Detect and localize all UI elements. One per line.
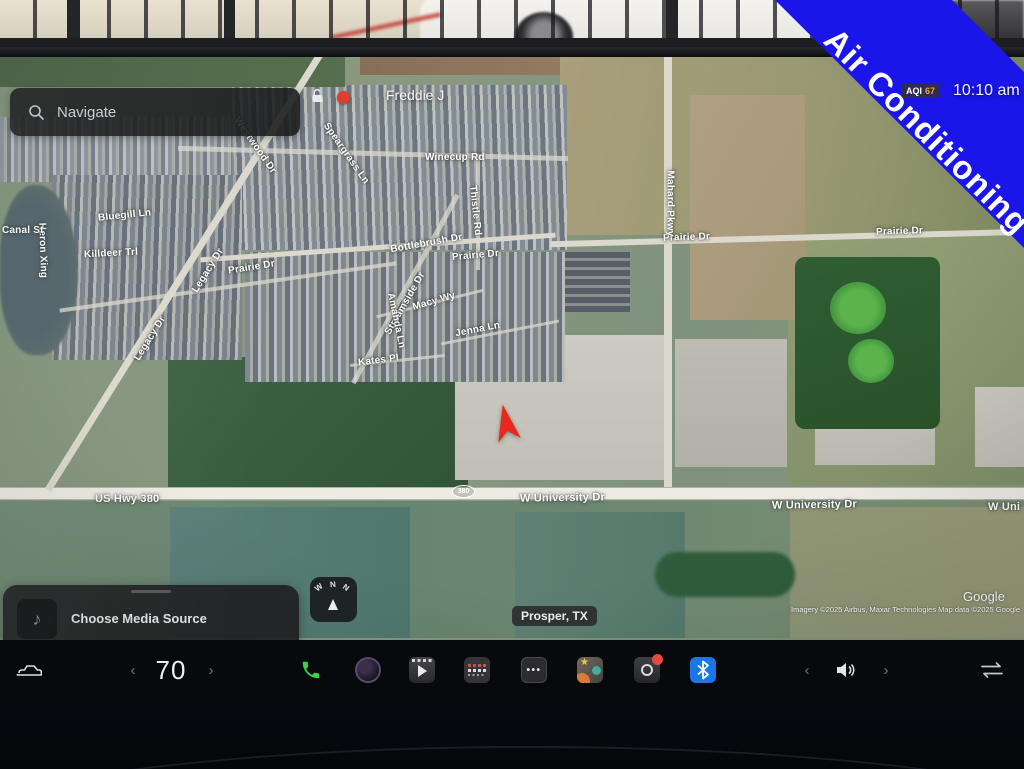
chevron-right-icon: › <box>884 662 889 679</box>
street-label: Winecup Rd <box>425 152 485 163</box>
toybox-app-button[interactable] <box>464 640 490 700</box>
dashboard-shadow <box>0 700 1024 769</box>
page: Westwood DrSpeargrass LnWinecup RdThistl… <box>0 0 1024 769</box>
volume-down-button[interactable]: ‹ <box>798 640 816 700</box>
screen-bottom-curve <box>0 746 1024 769</box>
media-title: Choose Media Source <box>71 611 207 626</box>
poi-label: Freddie J <box>386 87 444 103</box>
street-label: W University Dr <box>520 491 605 504</box>
temp-increase-button[interactable]: › <box>202 640 220 700</box>
street-label: W University Dr <box>772 498 857 511</box>
arcade-app-button[interactable]: ★ <box>577 640 603 700</box>
temperature-display[interactable]: 70 <box>148 640 194 700</box>
street-label: US Hwy 380 <box>95 493 159 505</box>
fence-rail <box>0 38 1024 47</box>
all-apps-button[interactable]: ••• <box>521 640 547 700</box>
dashcam-app-button[interactable] <box>355 640 381 700</box>
street-label: Legacy Dr <box>190 246 226 294</box>
speaker-icon <box>835 660 859 680</box>
screen-bezel <box>0 47 1024 57</box>
chevron-left-icon: ‹ <box>131 662 136 679</box>
bluetooth-icon <box>690 657 716 683</box>
street-label: Prairie Dr <box>227 258 275 276</box>
navigate-search-bar[interactable]: Navigate <box>10 88 300 136</box>
compass-letter: N <box>330 580 337 589</box>
compass-letter: N <box>341 582 351 593</box>
street-label: Jenna Ln <box>454 320 501 339</box>
compass-letter: W <box>313 582 325 594</box>
street-label: Kates Pl <box>357 353 399 369</box>
album-art-placeholder: ♪ <box>17 599 57 639</box>
video-player-icon <box>409 657 435 683</box>
media-widget[interactable]: ♪ Choose Media Source <box>3 585 299 640</box>
compass[interactable]: W N N <box>310 577 357 622</box>
windshield-photo <box>0 0 1024 47</box>
aqi-label: AQI <box>906 86 922 96</box>
volume-button[interactable] <box>832 640 862 700</box>
launcher-bar: ‹ 70 › ••• <box>0 640 1024 700</box>
search-placeholder: Navigate <box>57 104 116 121</box>
street-label: Killdeer Trl <box>84 247 139 261</box>
bluetooth-button[interactable] <box>690 640 716 700</box>
street-label-layer: Westwood DrSpeargrass LnWinecup RdThistl… <box>0 57 1024 640</box>
volume-up-button[interactable]: › <box>877 640 895 700</box>
map-attribution: Imagery ©2025 Airbus, Maxar Technologies… <box>690 605 1020 614</box>
vehicle-controls-button[interactable] <box>14 640 44 700</box>
temp-decrease-button[interactable]: ‹ <box>124 640 142 700</box>
lock-icon <box>311 88 324 103</box>
playlist-rows-icon <box>464 657 490 683</box>
street-label: Macy Wy <box>411 290 456 313</box>
street-label: Thistle Rd <box>467 185 483 236</box>
city-label: Prosper, TX <box>512 606 597 626</box>
highway-shield: 380 <box>452 485 475 498</box>
street-label: Speargrass Ln <box>321 121 371 186</box>
chevron-left-icon: ‹ <box>805 662 810 679</box>
street-label: Canal St <box>2 225 44 236</box>
street-label: W Uni <box>988 501 1020 513</box>
swap-arrows-icon <box>979 660 1005 680</box>
temperature-value: 70 <box>156 655 187 686</box>
camera-app-button[interactable] <box>634 640 660 700</box>
street-label: Prairie Dr <box>452 248 500 263</box>
search-icon <box>28 104 45 121</box>
google-logo: Google <box>963 589 1005 604</box>
street-label: Prairie Dr <box>876 225 923 238</box>
chevron-right-icon: › <box>209 662 214 679</box>
more-apps-icon: ••• <box>521 657 547 683</box>
street-label: Legacy Dr <box>132 314 168 362</box>
drag-handle[interactable] <box>131 590 171 593</box>
phone-button[interactable] <box>298 640 324 700</box>
phone-icon <box>300 659 322 681</box>
traffic-signal-dot <box>337 91 350 104</box>
music-note-icon: ♪ <box>33 609 42 630</box>
notification-badge <box>652 654 663 665</box>
scene-icon: ★ <box>577 657 603 683</box>
street-label: Bluegill Ln <box>98 207 152 224</box>
media-swap-button[interactable] <box>978 640 1006 700</box>
clock: 10:10 am <box>953 82 1020 100</box>
camera-lens-icon <box>355 657 381 683</box>
theater-app-button[interactable] <box>409 640 435 700</box>
car-icon <box>16 661 42 679</box>
camera-icon <box>634 657 660 683</box>
compass-needle-icon <box>328 599 338 610</box>
street-label: Mahard Pkwy <box>665 170 676 236</box>
map[interactable]: Westwood DrSpeargrass LnWinecup RdThistl… <box>0 57 1024 640</box>
vehicle-location-arrow <box>492 402 522 444</box>
aqi-badge: AQI 67 <box>901 84 940 98</box>
aqi-value: 67 <box>925 86 935 96</box>
